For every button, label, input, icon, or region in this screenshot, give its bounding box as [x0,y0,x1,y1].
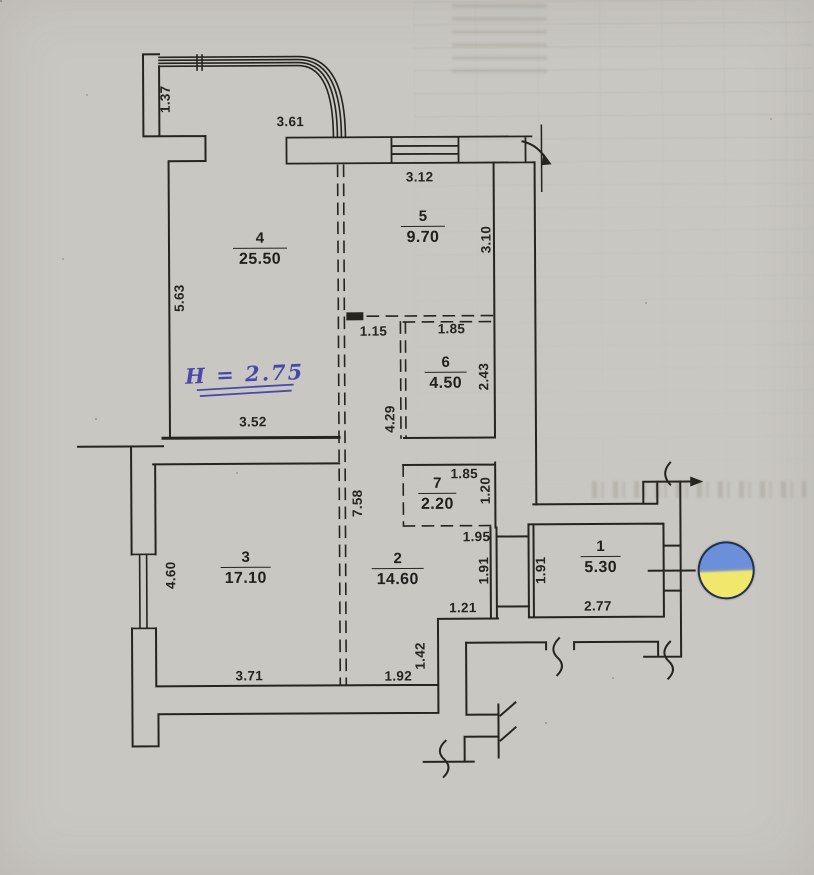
room-7-label: 7 2.20 [418,476,456,514]
dim-1-21: 1.21 [449,600,477,615]
room-5-number: 5 [401,209,445,227]
balcony-glazing-curves [159,54,345,138]
dim-7-58: 7.58 [350,489,365,517]
dim-1-91-a: 1.91 [476,557,491,585]
floor-plan-drawing [0,0,814,875]
dim-3-61: 3.61 [277,114,305,129]
door-mark-hall [553,638,562,675]
dim-3-12: 3.12 [406,169,434,184]
room-5-area: 9.70 [401,229,445,247]
room-1-label: 1 5.30 [581,539,621,577]
dim-1-91-b: 1.91 [533,557,548,585]
wall-stub [346,312,363,320]
room-2-label: 2 14.60 [372,551,424,589]
balcony-door-swing [522,125,551,191]
room2-right-wall-and-passage [490,527,528,618]
door-mark-bottom-left [440,741,449,777]
room-4-label: 4 25.50 [233,231,287,269]
entrance-arrow [690,476,703,486]
handwritten-ceiling-height: H = 2.75 [185,359,305,389]
scanned-floor-plan-page: 4 25.50 5 9.70 6 4.50 7 2.20 3 17.10 2 1… [0,0,814,875]
dim-3-52: 3.52 [239,414,267,429]
room-4-area: 25.50 [233,251,287,269]
entrance-upper-walls [533,476,703,504]
floor-plan: 4 25.50 5 9.70 6 4.50 7 2.20 3 17.10 2 1… [0,0,814,875]
dim-2-77: 2.77 [584,598,612,613]
dim-1-20: 1.20 [478,477,493,505]
dim-4-60: 4.60 [163,561,178,589]
room-3-label: 3 17.10 [221,550,271,588]
dim-4-29: 4.29 [382,405,397,433]
dim-1-37: 1.37 [158,85,173,113]
room-2-number: 2 [372,551,424,569]
dim-3-71: 3.71 [235,668,263,683]
room-6-label: 6 4.50 [425,355,467,393]
room-6-number: 6 [425,355,467,373]
room-2-area: 14.60 [372,571,424,589]
dim-1-85-a: 1.85 [438,321,466,336]
dim-5-63: 5.63 [172,284,187,312]
dim-1-15: 1.15 [360,324,388,339]
room-3-number: 3 [221,550,271,568]
room-1-area: 5.30 [581,559,621,577]
parapet-window-band [286,136,534,163]
door-swing-marks [438,463,673,777]
ukraine-flag-sticker [698,541,755,599]
dim-1-95: 1.95 [463,529,491,544]
dim-1-92: 1.92 [384,668,412,683]
dim-3-10: 3.10 [478,226,493,254]
dim-2-43: 2.43 [476,363,491,391]
room3-window [132,554,156,628]
room-6-area: 4.50 [425,375,467,393]
room-7-area: 2.20 [418,496,456,514]
room-4-number: 4 [233,231,287,249]
door-mark-bottom-right [664,642,673,679]
dim-1-85-b: 1.85 [450,466,478,481]
room-5-label: 5 9.70 [401,209,445,247]
room-1-number: 1 [581,539,621,557]
dim-1-42: 1.42 [413,642,428,670]
room-3-area: 17.10 [221,570,271,588]
